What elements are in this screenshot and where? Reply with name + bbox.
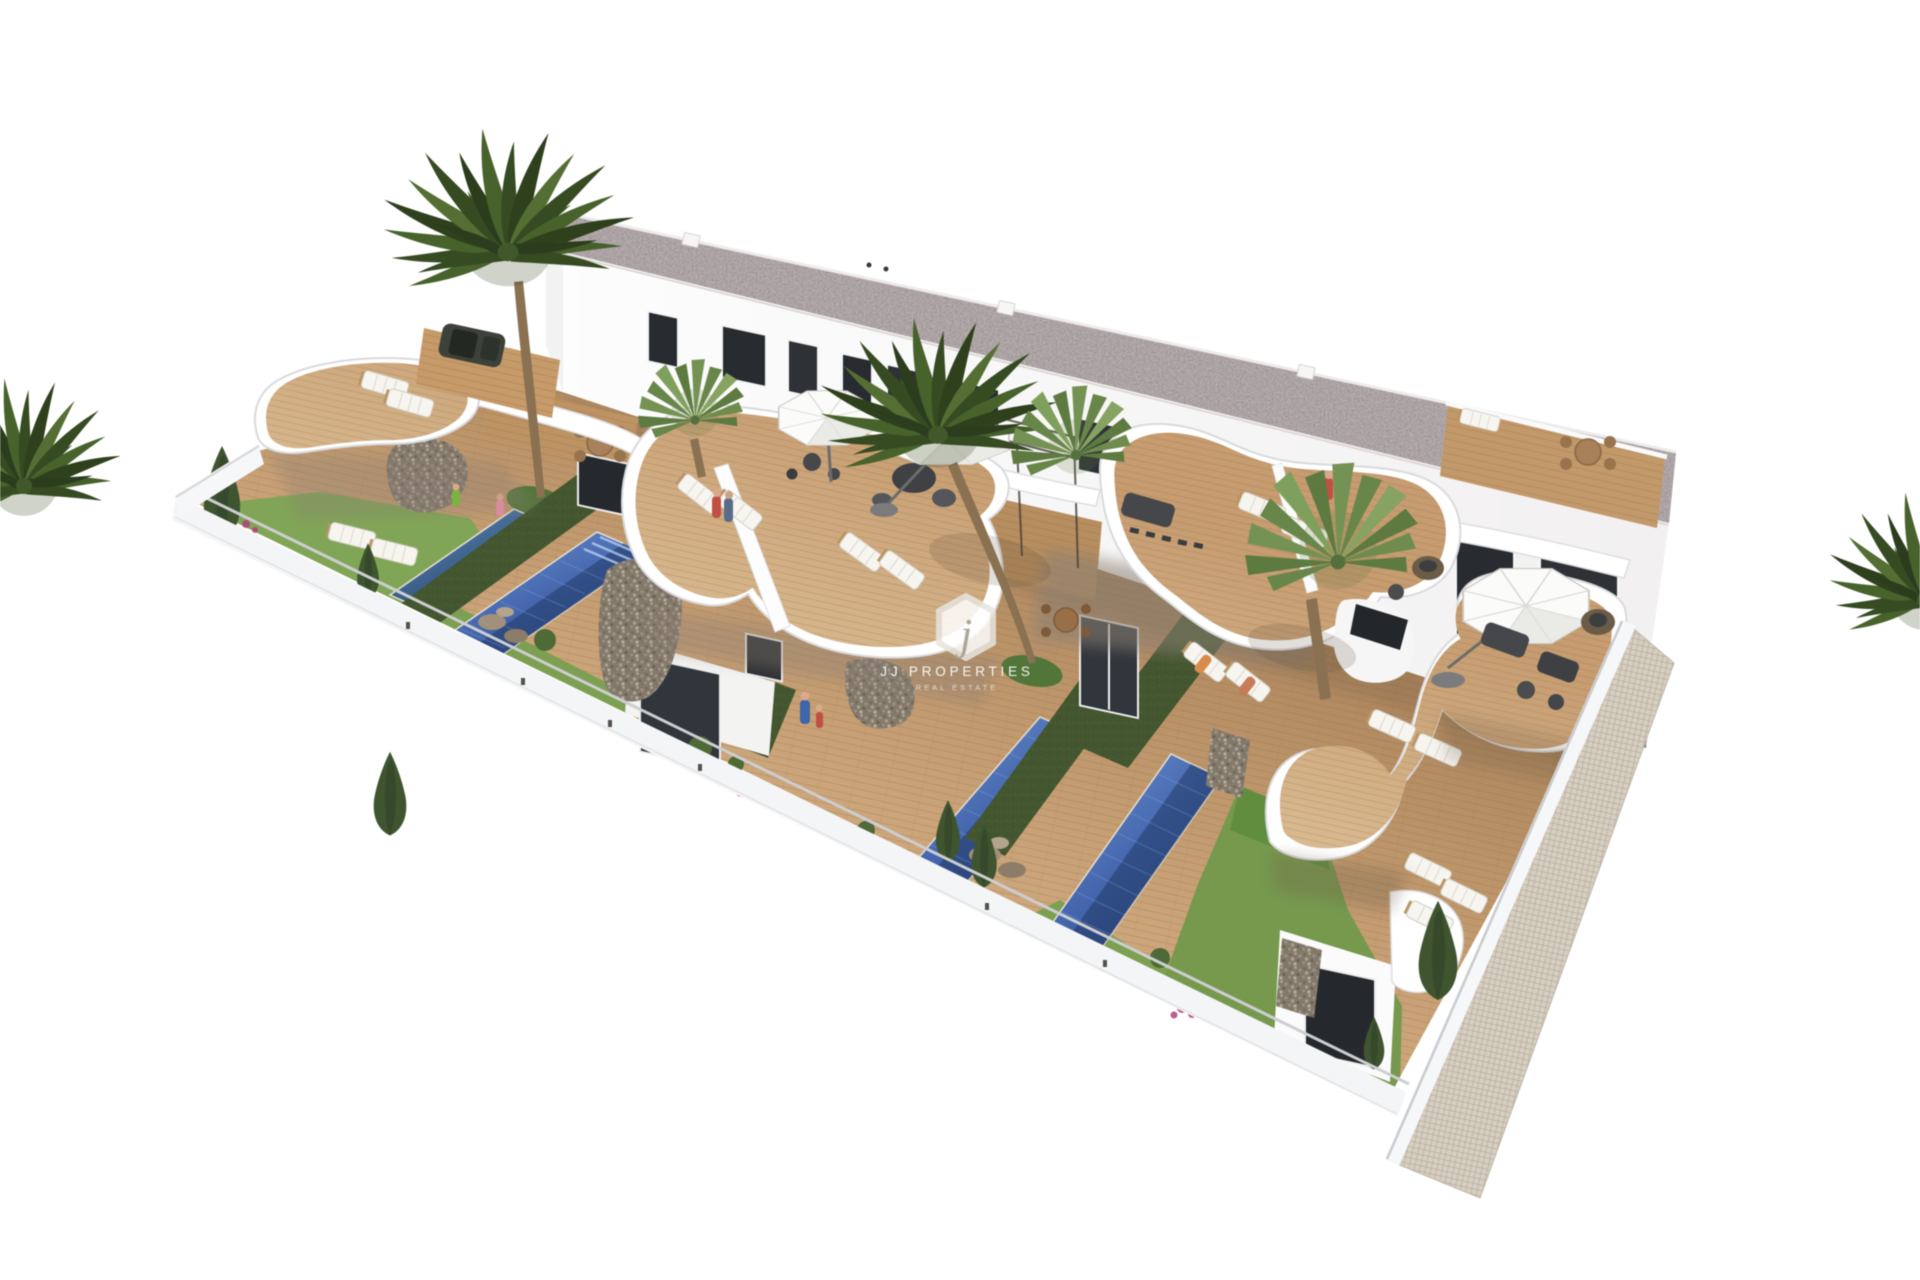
svg-text:REAL ESTATE: REAL ESTATE	[916, 683, 998, 692]
svg-text:JJ PROPERTIES: JJ PROPERTIES	[880, 664, 1033, 679]
